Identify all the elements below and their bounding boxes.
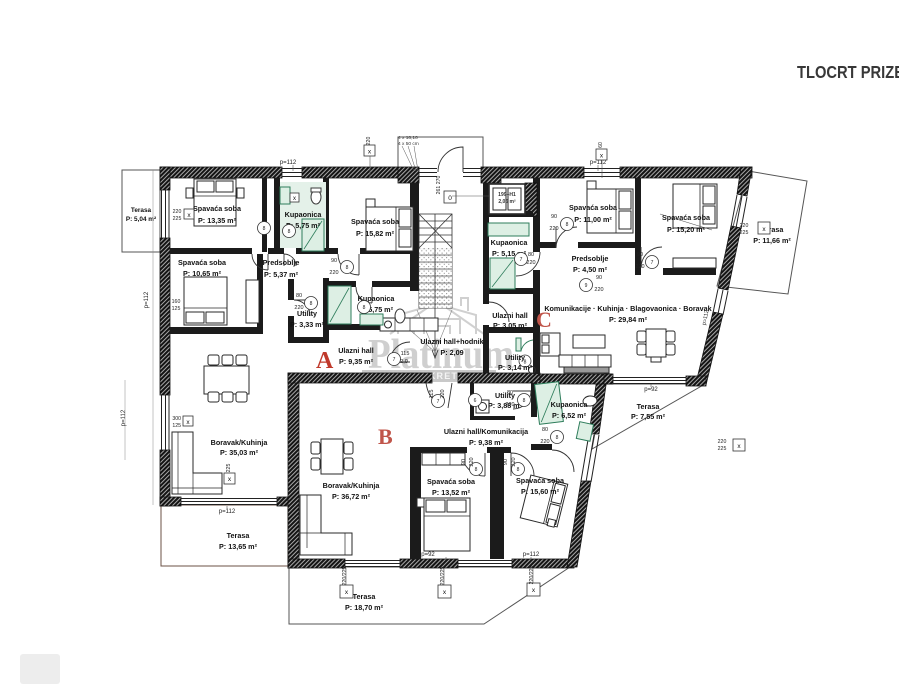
svg-text:220: 220 xyxy=(469,457,475,466)
svg-text:8: 8 xyxy=(363,305,366,311)
svg-text:P: 9,38 m²: P: 9,38 m² xyxy=(469,438,504,447)
svg-text:C: C xyxy=(536,307,552,332)
svg-text:P: 15,82 m²: P: 15,82 m² xyxy=(356,229,395,238)
svg-text:p=112: p=112 xyxy=(121,409,127,426)
svg-text:125: 125 xyxy=(172,306,181,312)
svg-text:A: A xyxy=(316,348,334,374)
svg-text:Spavaća soba: Spavaća soba xyxy=(351,217,400,226)
svg-text:P: 7,55 m²: P: 7,55 m² xyxy=(631,412,666,421)
svg-text:220: 220 xyxy=(718,439,727,445)
svg-text:Komunikacije · Kuhinja · Blago: Komunikacije · Kuhinja · Blagovaonica · … xyxy=(544,304,711,313)
svg-text:60: 60 xyxy=(598,142,604,148)
svg-text:p=112: p=112 xyxy=(219,509,236,515)
svg-text:P: 5,37 m²: P: 5,37 m² xyxy=(264,270,299,279)
svg-text:115: 115 xyxy=(429,390,435,399)
svg-text:P: 29,84 m²: P: 29,84 m² xyxy=(609,315,648,324)
svg-text:Spavaća soba: Spavaća soba xyxy=(516,476,565,485)
svg-text:90: 90 xyxy=(637,252,643,258)
svg-text:Spavaća soba: Spavaća soba xyxy=(427,477,476,486)
svg-text:0: 0 xyxy=(448,195,452,202)
svg-text:261 270: 261 270 xyxy=(436,176,442,195)
svg-text:Ulazni hall/Komunikacija: Ulazni hall/Komunikacija xyxy=(444,427,529,436)
svg-text:115: 115 xyxy=(401,351,410,357)
svg-text:8: 8 xyxy=(517,467,520,473)
svg-text:8: 8 xyxy=(346,265,349,271)
svg-text:x: x xyxy=(293,196,296,202)
svg-text:90: 90 xyxy=(596,275,602,281)
svg-text:P: 35,03 m²: P: 35,03 m² xyxy=(220,448,259,457)
svg-text:220/225: 220/225 xyxy=(529,566,535,585)
svg-text:220/225: 220/225 xyxy=(440,567,446,586)
svg-text:P: 13,35 m²: P: 13,35 m² xyxy=(198,216,237,225)
svg-text:220: 220 xyxy=(740,223,749,229)
svg-text:6: 6 xyxy=(474,398,477,404)
svg-text:8: 8 xyxy=(566,222,569,228)
svg-text:P: 2,09: P: 2,09 xyxy=(440,348,463,357)
svg-text:220: 220 xyxy=(294,305,303,311)
svg-text:Ulazni hall: Ulazni hall xyxy=(492,311,528,320)
svg-text:TLOCRT PRIZE: TLOCRT PRIZE xyxy=(797,62,899,82)
svg-text:225: 225 xyxy=(173,216,182,222)
svg-text:P: 15,60 m²: P: 15,60 m² xyxy=(521,487,560,496)
svg-text:P: 36,72 m²: P: 36,72 m² xyxy=(332,492,371,501)
svg-text:4 x 16,10: 4 x 16,10 xyxy=(398,135,418,141)
svg-text:7: 7 xyxy=(651,260,654,266)
svg-text:7: 7 xyxy=(437,399,440,405)
svg-text:p=112: p=112 xyxy=(144,291,150,308)
svg-text:8: 8 xyxy=(556,435,559,441)
svg-text:P: 13,65 m²: P: 13,65 m² xyxy=(219,542,258,551)
svg-text:90: 90 xyxy=(551,214,557,220)
svg-text:Boravak/Kuhinja: Boravak/Kuhinja xyxy=(211,438,269,447)
svg-text:p=112: p=112 xyxy=(280,160,297,166)
svg-text:P: 13,52 m²: P: 13,52 m² xyxy=(432,488,471,497)
svg-text:Spavaća soba: Spavaća soba xyxy=(662,213,711,222)
svg-text:7: 7 xyxy=(520,257,523,263)
svg-text:220: 220 xyxy=(329,270,338,276)
svg-text:Predsoblje: Predsoblje xyxy=(572,254,609,263)
svg-text:Terasa: Terasa xyxy=(353,592,377,601)
svg-text:8: 8 xyxy=(475,467,478,473)
svg-text:80: 80 xyxy=(542,427,548,433)
svg-text:220: 220 xyxy=(635,264,644,270)
svg-text:9: 9 xyxy=(585,283,588,289)
svg-text:Kupaonica: Kupaonica xyxy=(285,210,323,219)
svg-text:220: 220 xyxy=(540,439,549,445)
svg-text:p=112: p=112 xyxy=(523,552,540,558)
svg-text:199+H1: 199+H1 xyxy=(498,192,516,198)
svg-text:Spavaća soba: Spavaća soba xyxy=(569,203,618,212)
svg-text:P: 9,35 m²: P: 9,35 m² xyxy=(339,357,374,366)
svg-text:225: 225 xyxy=(226,464,232,473)
svg-text:90: 90 xyxy=(503,459,509,465)
svg-text:80: 80 xyxy=(507,390,513,396)
svg-text:220: 220 xyxy=(366,137,372,146)
svg-text:8: 8 xyxy=(310,301,313,307)
svg-text:220: 220 xyxy=(440,389,446,398)
svg-text:Ulazni hall: Ulazni hall xyxy=(338,346,374,355)
svg-text:P: 4,50 m²: P: 4,50 m² xyxy=(573,265,608,274)
svg-text:220: 220 xyxy=(505,402,514,408)
svg-text:220: 220 xyxy=(173,209,182,215)
svg-text:p=112: p=112 xyxy=(590,160,607,166)
svg-text:Terasa: Terasa xyxy=(227,531,251,540)
svg-text:P: 11,00 m²: P: 11,00 m² xyxy=(574,215,612,224)
svg-text:220: 220 xyxy=(549,226,558,232)
svg-text:2,06 m²: 2,06 m² xyxy=(498,199,516,205)
svg-text:8: 8 xyxy=(288,229,291,235)
svg-text:P: 5,04 m²: P: 5,04 m² xyxy=(126,216,156,223)
svg-text:160: 160 xyxy=(172,299,181,305)
svg-text:Kupaonica: Kupaonica xyxy=(491,238,529,247)
svg-text:P: 11,66 m²: P: 11,66 m² xyxy=(753,236,791,245)
svg-text:Utility: Utility xyxy=(505,353,525,362)
svg-text:Spavaća soba: Spavaća soba xyxy=(193,204,242,213)
svg-text:P: 18,70 m²: P: 18,70 m² xyxy=(345,603,384,612)
svg-text:2,0: 2,0 xyxy=(400,359,408,365)
svg-text:Spavaća soba: Spavaća soba xyxy=(178,258,227,267)
svg-text:P: 3,14 m²: P: 3,14 m² xyxy=(498,363,533,372)
svg-text:P: 10,65 m²: P: 10,65 m² xyxy=(183,269,222,278)
svg-text:125: 125 xyxy=(172,423,181,429)
svg-text:8: 8 xyxy=(523,398,526,404)
svg-text:Terasa: Terasa xyxy=(637,402,661,411)
svg-text:80: 80 xyxy=(296,293,302,299)
svg-text:p=92: p=92 xyxy=(644,387,658,393)
svg-text:P: 3,05 m²: P: 3,05 m² xyxy=(493,321,528,330)
svg-text:220: 220 xyxy=(594,287,603,293)
svg-text:Predsoblje: Predsoblje xyxy=(263,258,300,267)
svg-text:300: 300 xyxy=(172,416,181,422)
svg-text:220: 220 xyxy=(511,457,517,466)
svg-text:220/225: 220/225 xyxy=(342,567,348,586)
svg-text:Ulazni hall+hodnik: Ulazni hall+hodnik xyxy=(420,337,483,346)
svg-text:4 x 50 cm: 4 x 50 cm xyxy=(398,141,419,147)
svg-text:8: 8 xyxy=(263,226,266,232)
svg-text:P: 6,52 m²: P: 6,52 m² xyxy=(552,411,587,420)
svg-text:B: B xyxy=(378,424,393,449)
svg-text:90: 90 xyxy=(461,459,467,465)
svg-text:225: 225 xyxy=(718,446,727,452)
svg-text:P: 3,33 m²: P: 3,33 m² xyxy=(290,320,325,329)
svg-text:Terasa: Terasa xyxy=(131,207,152,214)
svg-text:Kupaonica: Kupaonica xyxy=(551,400,589,409)
svg-text:7: 7 xyxy=(393,357,396,363)
svg-text:90: 90 xyxy=(331,258,337,264)
svg-text:225: 225 xyxy=(740,230,749,236)
svg-text:220: 220 xyxy=(526,260,535,266)
svg-text:p=92: p=92 xyxy=(421,552,435,558)
svg-text:Boravak/Kuhinja: Boravak/Kuhinja xyxy=(323,481,381,490)
svg-text:80: 80 xyxy=(528,252,534,258)
